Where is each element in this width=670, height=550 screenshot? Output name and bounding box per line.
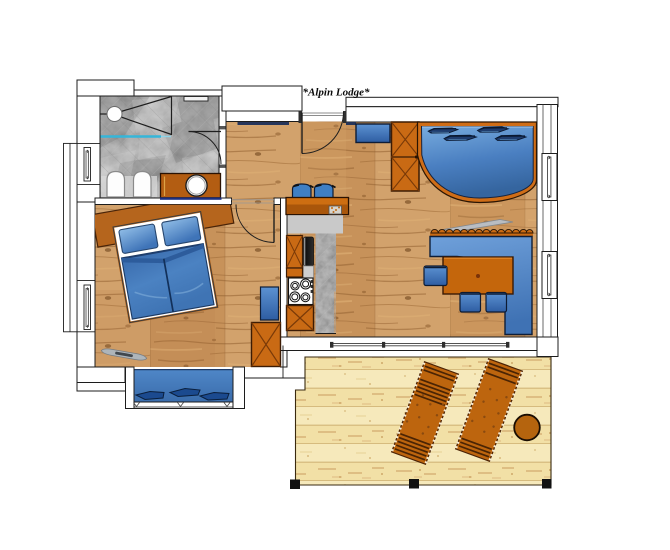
svg-text:*Alpin Lodge*: *Alpin Lodge* — [303, 87, 370, 99]
